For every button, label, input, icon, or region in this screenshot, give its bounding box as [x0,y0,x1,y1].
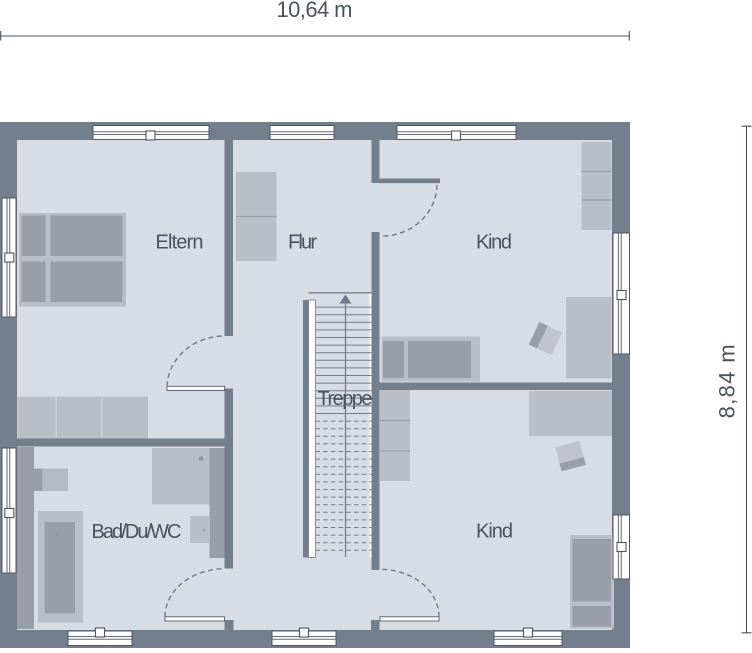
svg-text:Kind: Kind [476,232,512,254]
svg-text:Eltern: Eltern [156,232,204,254]
svg-text:Kind: Kind [476,521,513,543]
svg-text:10,64 m: 10,64 m [277,0,353,22]
svg-text:8,84 m: 8,84 m [714,344,739,418]
svg-text:Bad/Du/WC: Bad/Du/WC [92,521,182,543]
svg-text:Treppe: Treppe [318,388,373,410]
svg-text:Flur: Flur [288,232,317,254]
